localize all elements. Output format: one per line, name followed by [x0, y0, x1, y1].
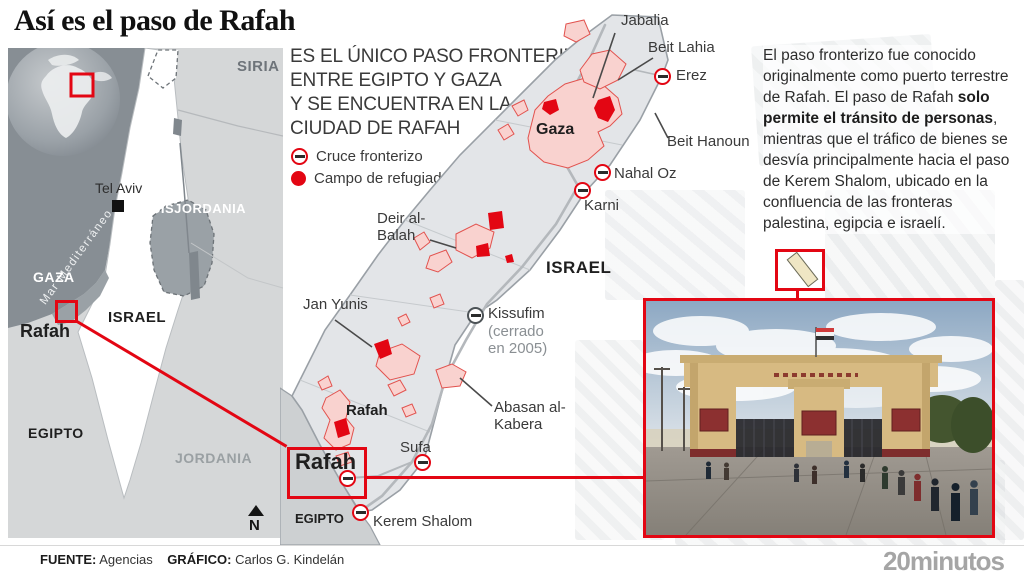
label-egipto-gaza-map: EGIPTO — [295, 512, 344, 526]
label-rafah-town: Rafah — [346, 403, 388, 420]
photo-illustration — [646, 301, 992, 535]
connector-map-to-photo — [365, 476, 645, 479]
source-value: Agencias — [99, 552, 152, 567]
page-title: Así es el paso de Rafah — [14, 4, 295, 38]
label-jan-yunis: Jan Yunis — [303, 297, 368, 314]
credit-value: Carlos G. Kindelán — [235, 552, 344, 567]
crossing-icon-karni — [574, 182, 591, 199]
crossing-icon-kerem-shalom — [352, 504, 369, 521]
label-egipto-locator: EGIPTO — [28, 426, 84, 441]
label-rafah-locator: Rafah — [20, 322, 70, 342]
crossing-icon-erez — [654, 68, 671, 85]
credit-label: GRÁFICO: — [167, 552, 231, 567]
crossing-icon-sufa — [414, 454, 431, 471]
label-gaza-city: Gaza — [536, 121, 574, 139]
label-tel-aviv: Tel Aviv — [95, 181, 142, 196]
label-nahal-oz: Nahal Oz — [614, 166, 677, 183]
label-jabalia: Jabalia — [621, 13, 669, 30]
north-arrow-label: N — [249, 517, 260, 534]
label-jordania: JORDANIA — [175, 451, 252, 466]
brand-logo: 20minutos — [883, 546, 1004, 576]
label-gaza: GAZA — [33, 270, 75, 285]
label-beit-hanoun: Beit Hanoun — [667, 134, 750, 151]
label-israel-locator: ISRAEL — [108, 310, 166, 327]
source-label: FUENTE: — [40, 552, 96, 567]
label-kissufim: Kissufim — [488, 306, 545, 323]
label-karni: Karni — [584, 198, 619, 215]
crossing-icon-nahal-oz — [594, 164, 611, 181]
label-kerem-shalom: Kerem Shalom — [373, 514, 472, 531]
locator-map-panel: Mar Mediterráneo SIRIA Tel Aviv CISJORDA… — [8, 48, 283, 538]
locator-highlight-square — [55, 300, 78, 323]
label-israel-gaza-map: ISRAEL — [546, 259, 611, 278]
tel-aviv-marker — [112, 200, 124, 212]
egypt-flag — [816, 328, 834, 340]
label-beit-lahia: Beit Lahia — [648, 40, 715, 57]
footer-divider — [0, 545, 1024, 546]
description-text: El paso fronterizo fue conocido original… — [763, 45, 1011, 234]
description-part2: , mientras que el tráfico de bienes se d… — [763, 110, 1009, 232]
infographic-canvas: Así es el paso de Rafah — [0, 0, 1024, 576]
rafah-highlight-box — [287, 447, 367, 499]
label-deir-al-balah: Deir al-Balah — [377, 211, 435, 244]
label-erez: Erez — [676, 68, 707, 85]
crossing-icon-kissufim — [467, 307, 484, 324]
label-cisjordania: CISJORDANIA — [151, 202, 246, 216]
label-kissufim-note: (cerrado en 2005) — [488, 324, 554, 357]
north-arrow-icon — [248, 505, 264, 516]
label-siria: SIRIA — [237, 59, 280, 76]
label-abasan: Abasan al-Kabera — [494, 400, 574, 433]
footer-credits: FUENTE: Agencias GRÁFICO: Carlos G. Kind… — [40, 552, 344, 567]
rafah-crossing-photo — [643, 298, 995, 538]
